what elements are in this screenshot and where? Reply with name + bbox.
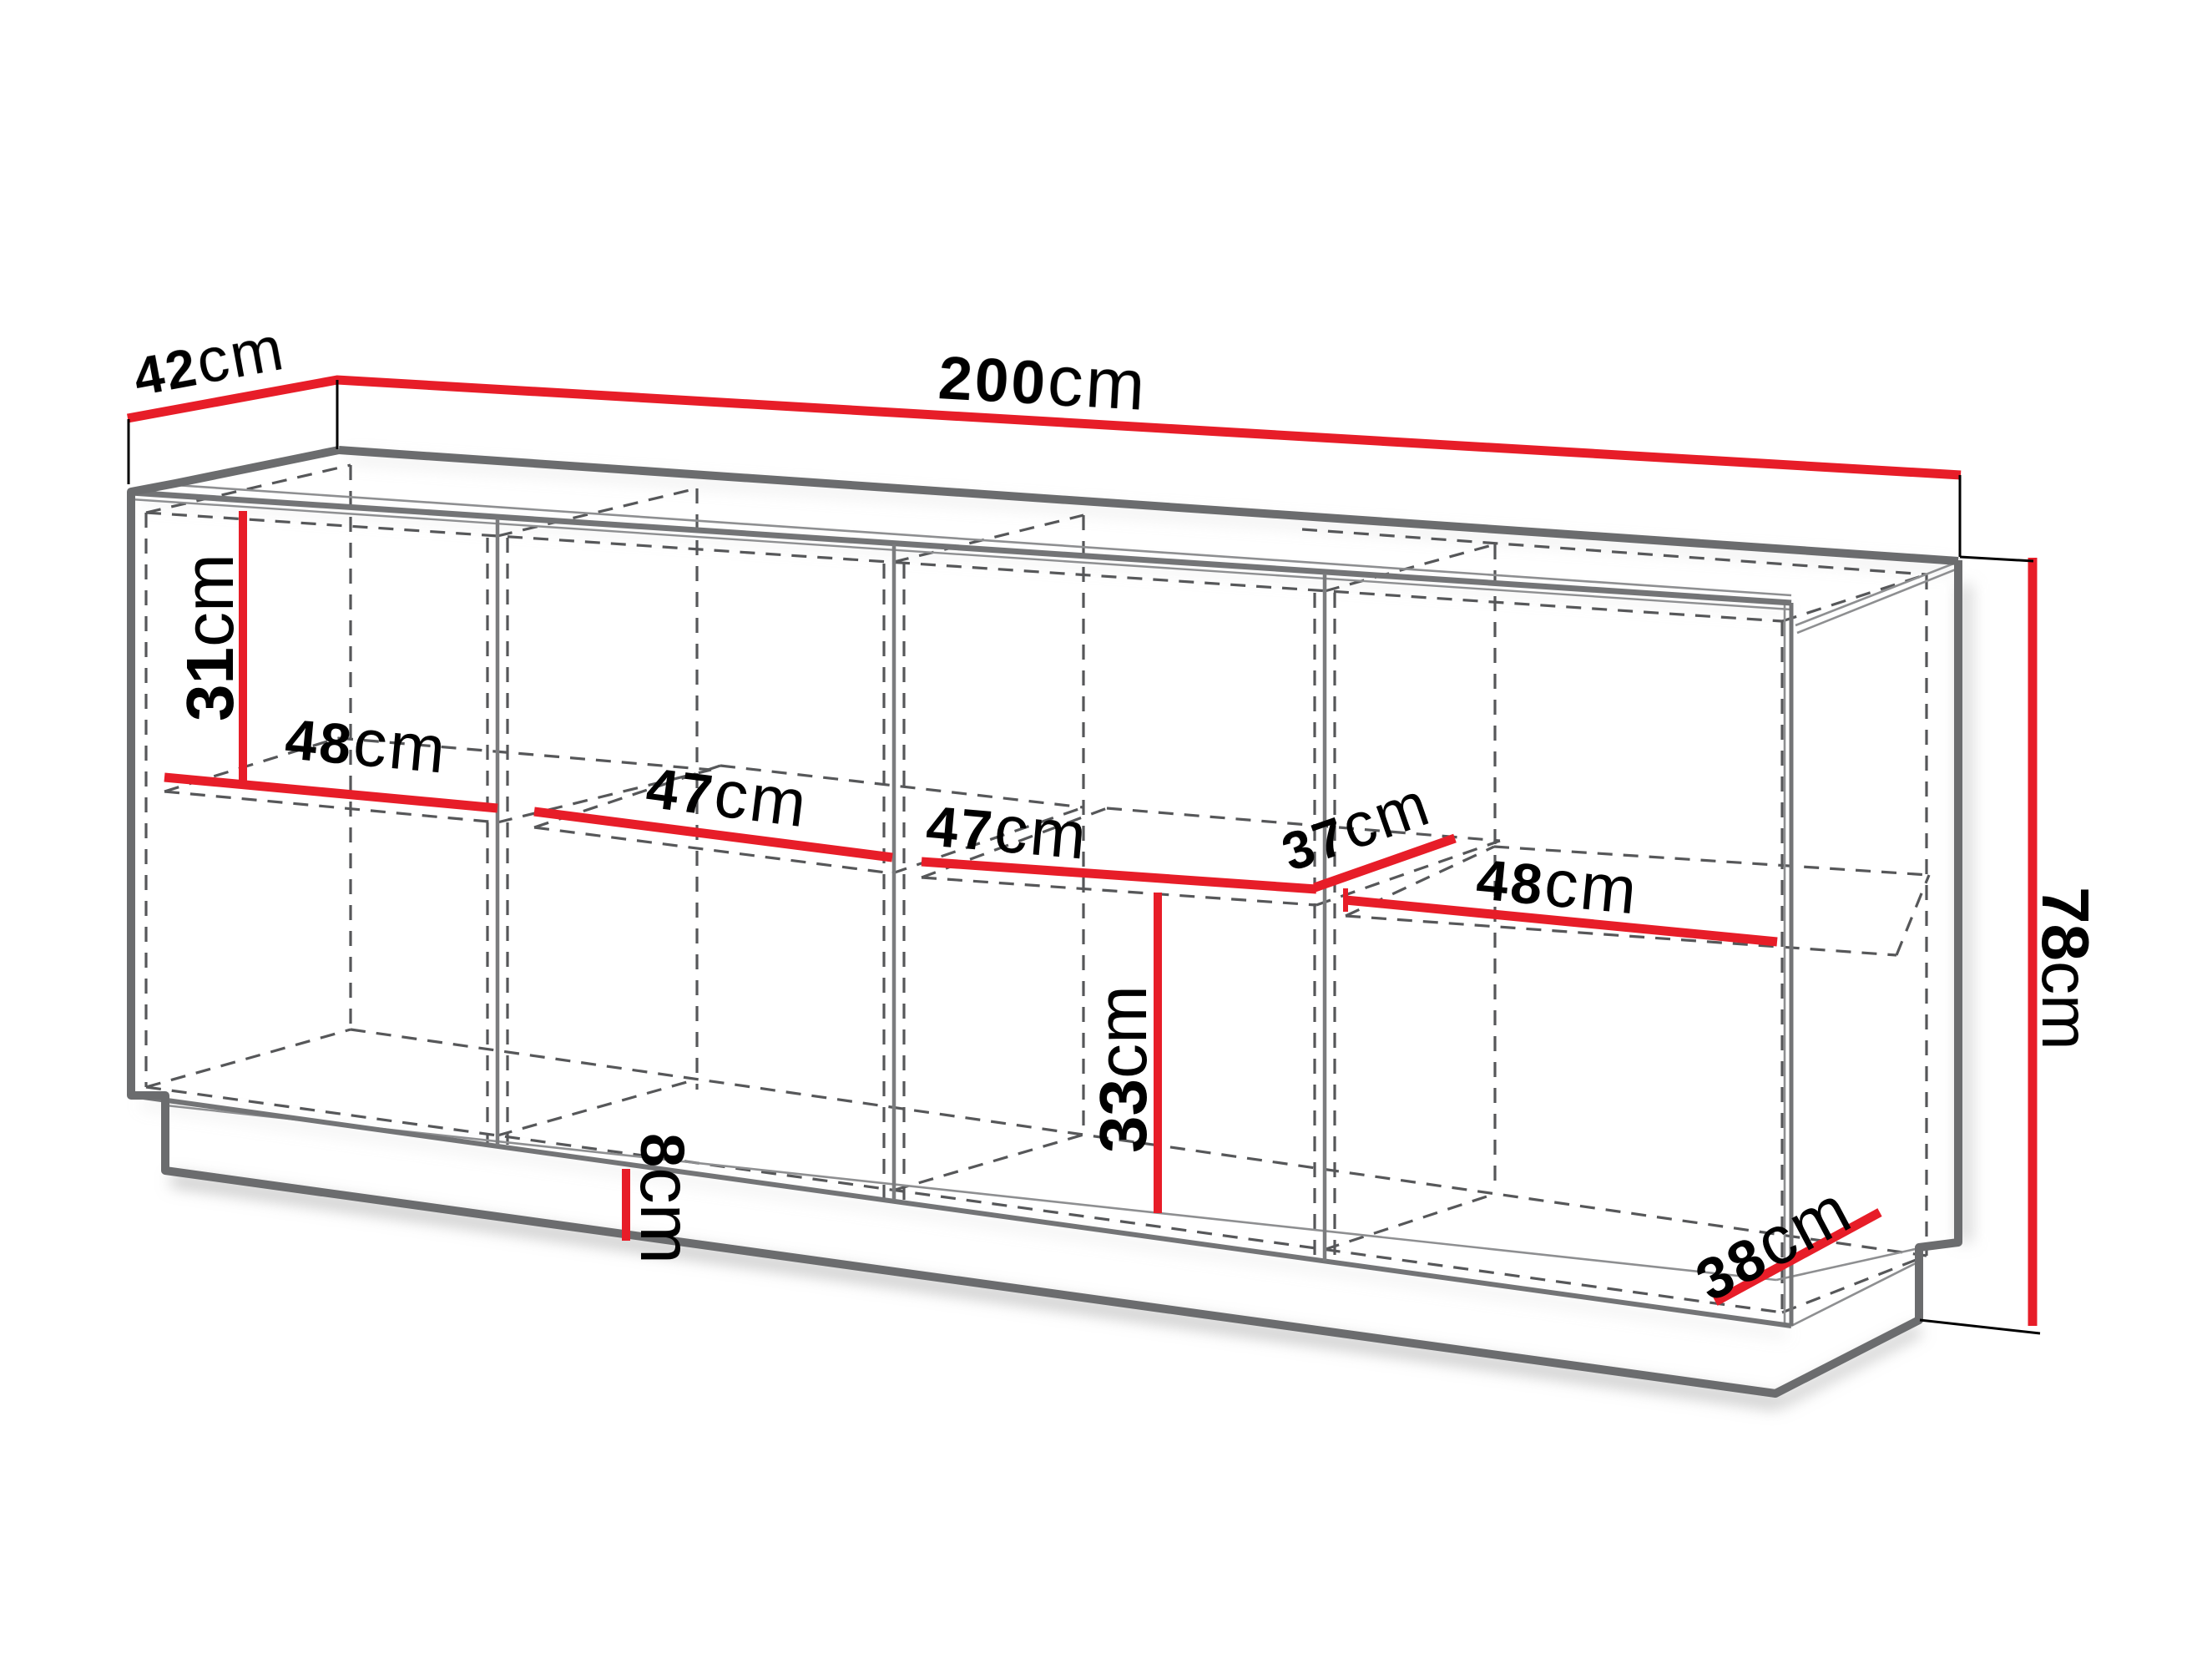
svg-text:33cm: 33cm [1083,985,1161,1153]
svg-text:31cm: 31cm [169,554,248,721]
svg-text:78cm: 78cm [2028,887,2103,1050]
svg-text:8cm: 8cm [625,1133,706,1264]
